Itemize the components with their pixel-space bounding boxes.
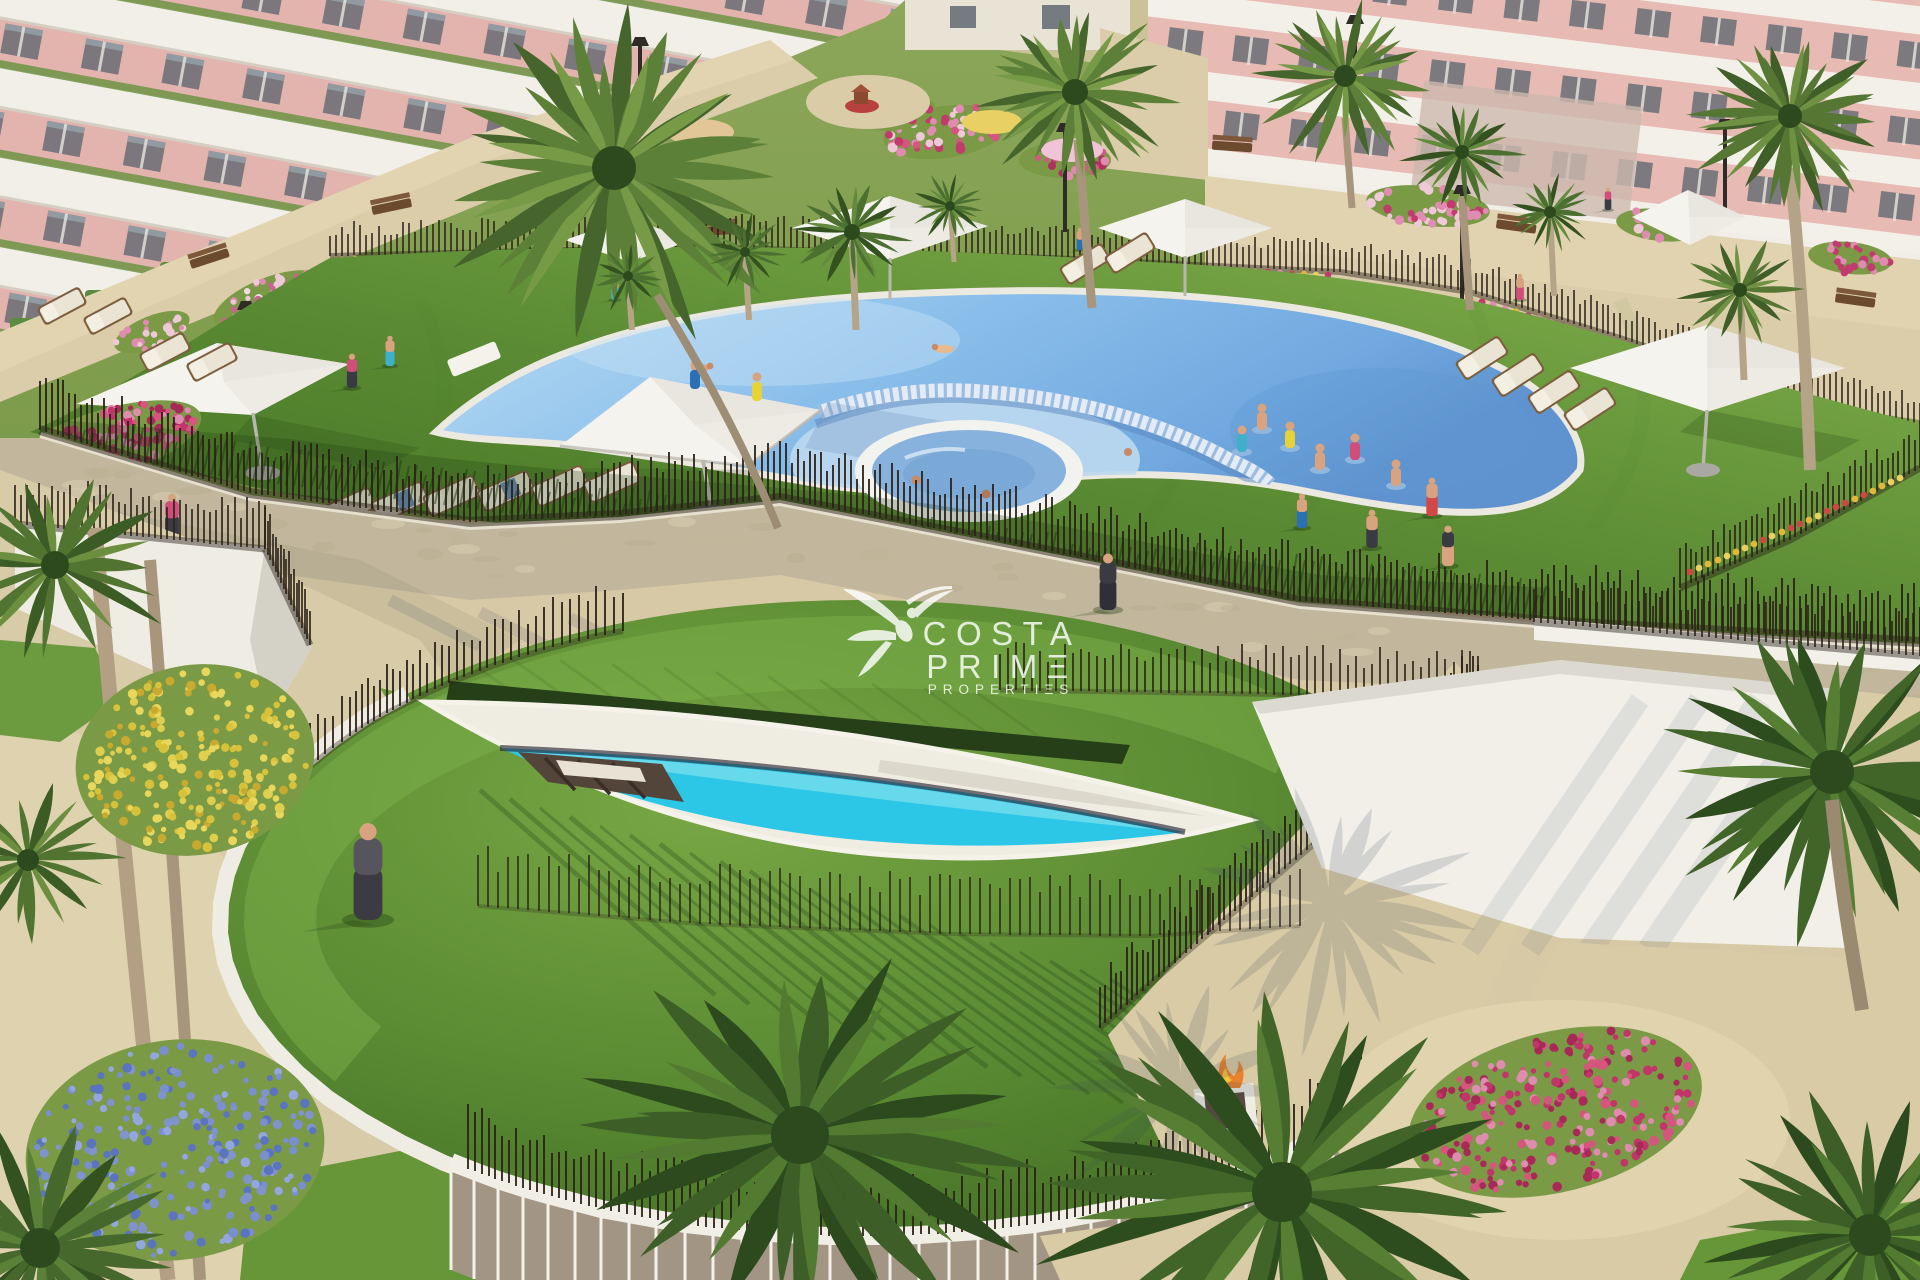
svg-text:COSTA: COSTA [923,615,1082,652]
svg-text:PROPERTIΞS: PROPERTIΞS [928,682,1075,697]
svg-text:PRIMΞ: PRIMΞ [926,648,1077,685]
